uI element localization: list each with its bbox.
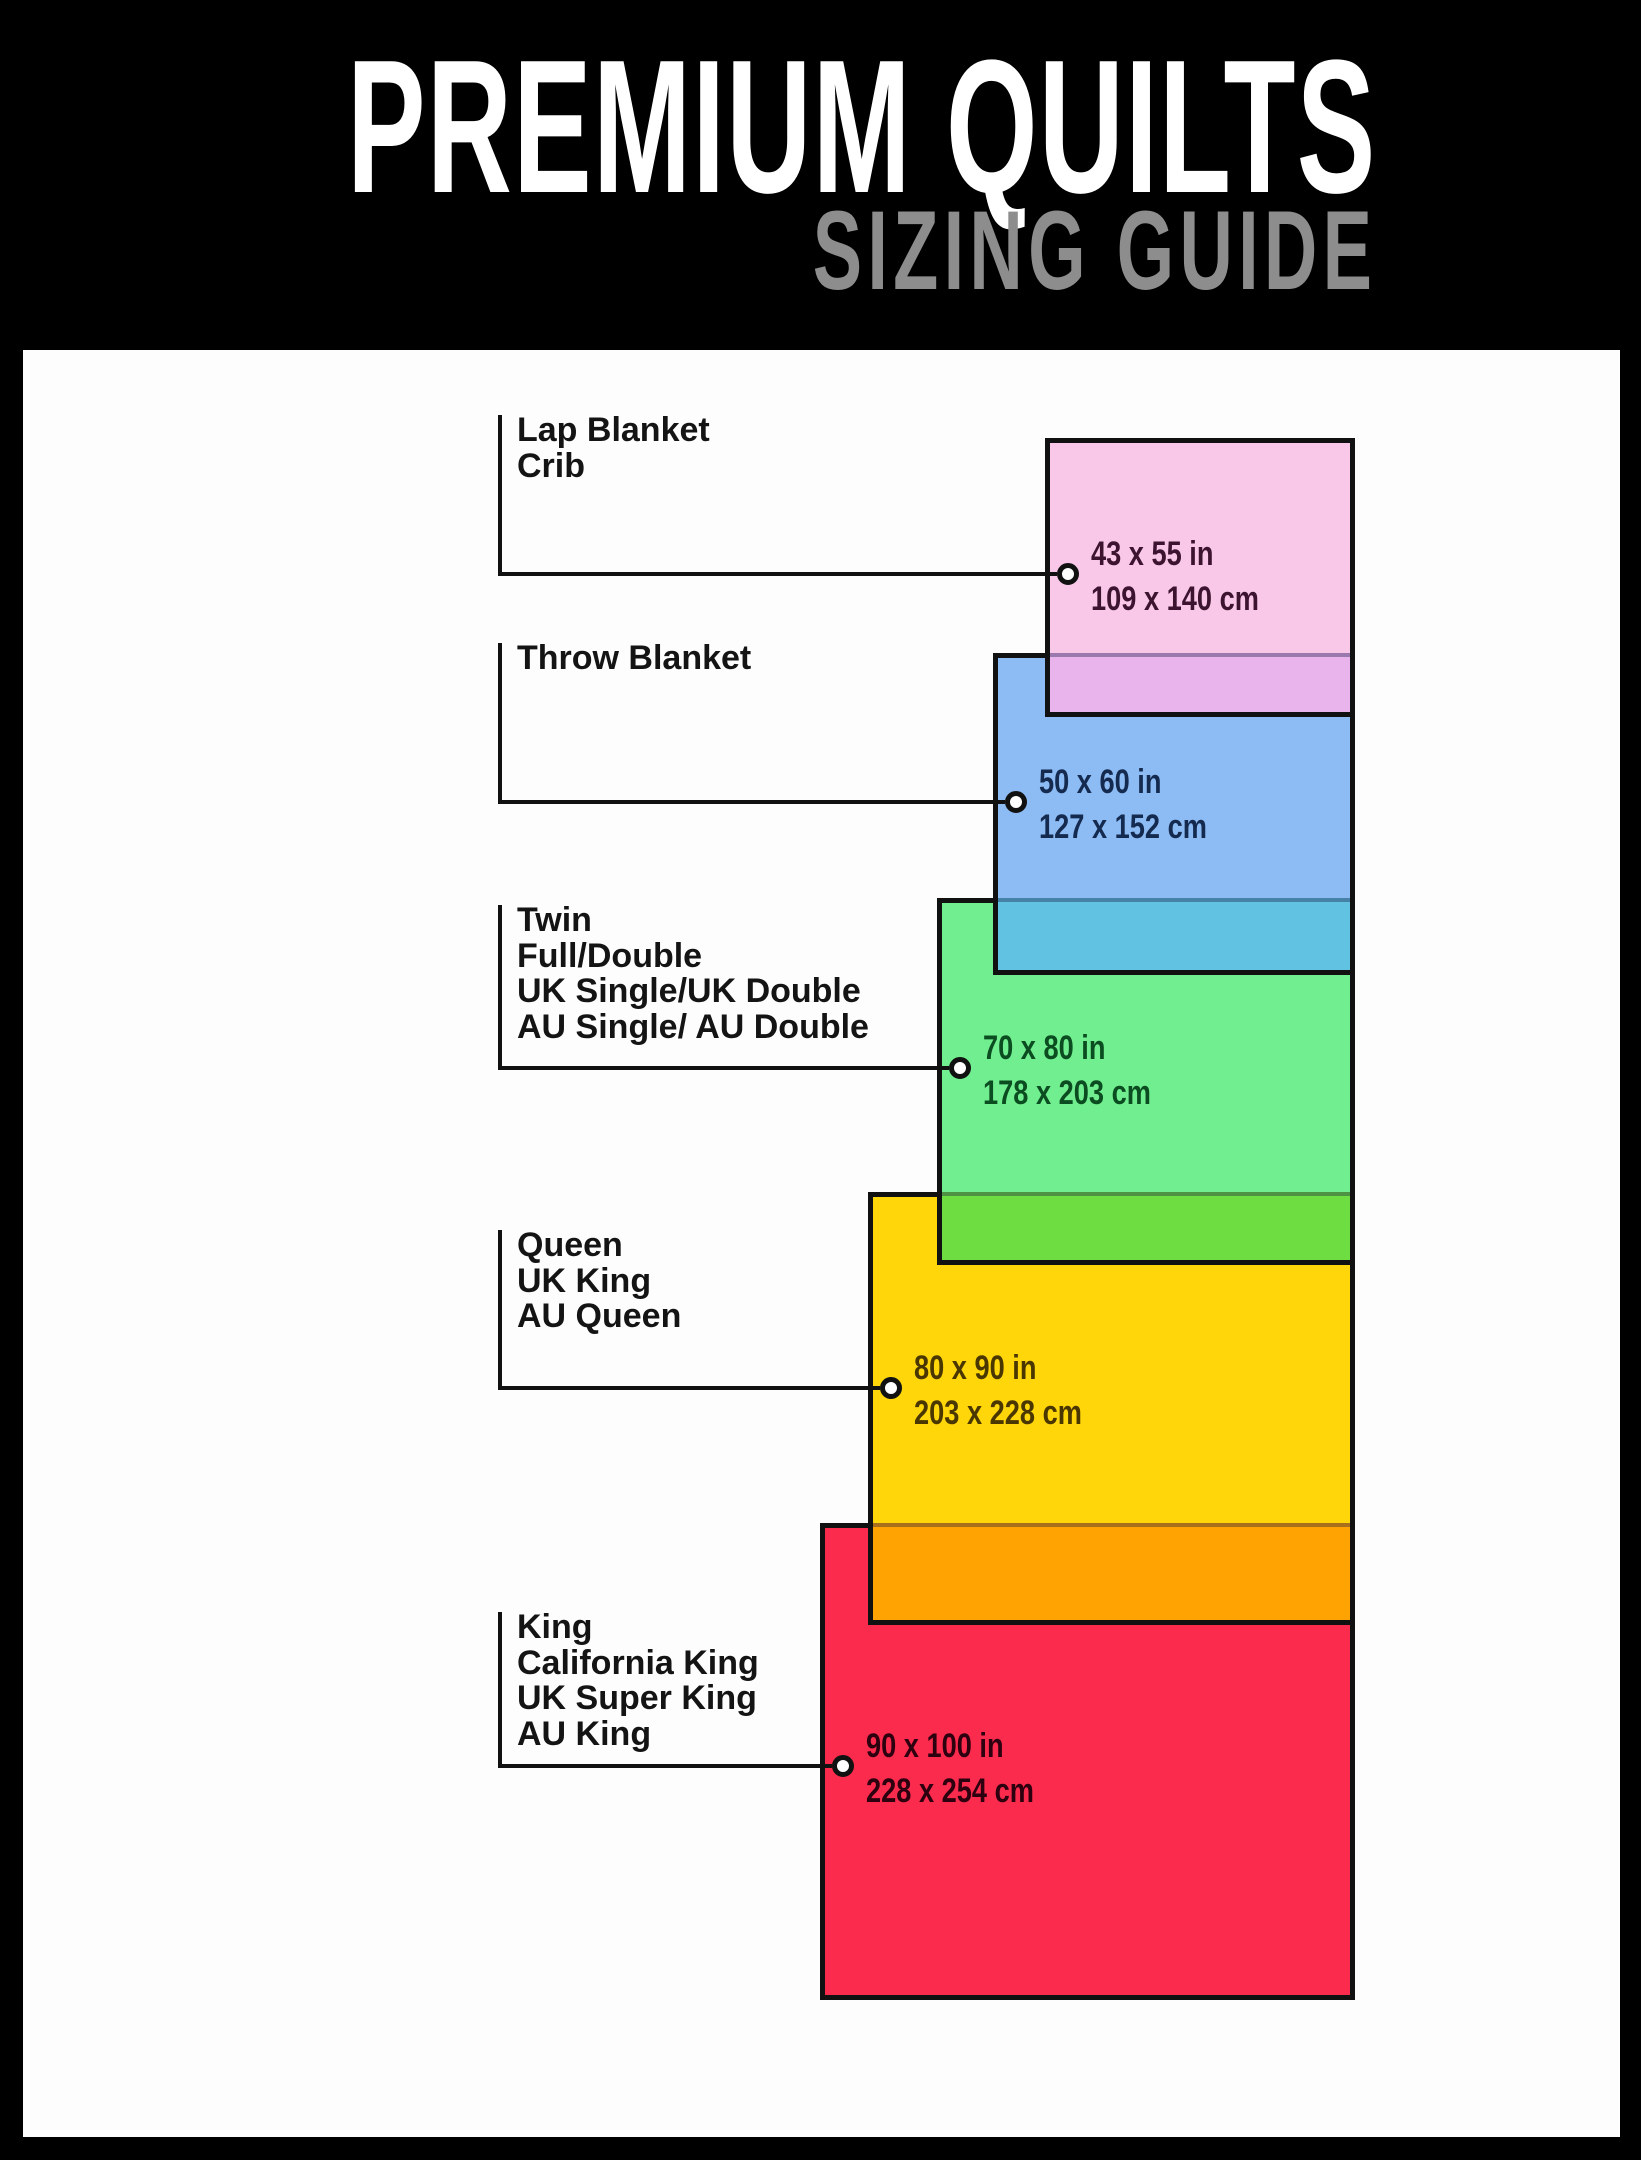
dim-centimeters: 228 x 254 cm: [866, 1769, 1034, 1814]
size-dimensions-text: 50 x 60 in127 x 152 cm: [1039, 760, 1207, 850]
size-label-king-california-king: KingCalifornia KingUK Super KingAU King: [517, 1610, 759, 1752]
leader-vertical-throw-blanket: [498, 643, 502, 804]
size-label-line: Lap Blanket: [517, 413, 710, 449]
dim-centimeters: 109 x 140 cm: [1091, 577, 1259, 622]
dim-centimeters: 127 x 152 cm: [1039, 805, 1207, 850]
size-label-line: UK Super King: [517, 1681, 759, 1717]
size-rect-topline-king-california-king: [820, 1523, 873, 1528]
dim-inches: 80 x 90 in: [914, 1346, 1082, 1391]
size-dimensions-text: 90 x 100 in228 x 254 cm: [866, 1724, 1034, 1814]
size-rect-topline-throw-blanket: [993, 653, 1050, 658]
leader-dot-throw-blanket: [1005, 791, 1027, 813]
size-label-line: Throw Blanket: [517, 641, 751, 677]
leader-vertical-lap-blanket-crib: [498, 415, 502, 576]
size-rect-topline-faint-queen-uk-king-au-queen: [942, 1192, 1350, 1196]
size-rect-topline-queen-uk-king-au-queen: [868, 1192, 942, 1197]
size-label-line: Full/Double: [517, 939, 869, 975]
size-dimensions-text: 80 x 90 in203 x 228 cm: [914, 1346, 1082, 1436]
size-label-line: UK Single/UK Double: [517, 974, 869, 1010]
size-dimensions-text: 43 x 55 in109 x 140 cm: [1091, 532, 1259, 622]
size-label-throw-blanket: Throw Blanket: [517, 641, 751, 677]
leader-dot-twin-full-double: [949, 1057, 971, 1079]
dim-centimeters: 178 x 203 cm: [983, 1071, 1151, 1116]
leader-vertical-twin-full-double: [498, 905, 502, 1070]
leader-dot-queen-uk-king-au-queen: [880, 1377, 902, 1399]
size-dimensions-queen-uk-king-au-queen: 80 x 90 in203 x 228 cm: [914, 1346, 1124, 1436]
leader-horizontal-queen-uk-king-au-queen: [498, 1386, 880, 1390]
size-label-line: Queen: [517, 1228, 681, 1264]
size-rect-topline-faint-twin-full-double: [998, 898, 1350, 902]
size-rect-topline-faint-throw-blanket: [1050, 653, 1350, 657]
dim-centimeters: 203 x 228 cm: [914, 1391, 1082, 1436]
size-dimensions-text: 70 x 80 in178 x 203 cm: [983, 1026, 1151, 1116]
leader-dot-king-california-king: [832, 1755, 854, 1777]
poster: PREMIUM QUILTS SIZING GUIDE Lap BlanketC…: [0, 0, 1641, 2160]
dim-inches: 70 x 80 in: [983, 1026, 1151, 1071]
size-label-lap-blanket-crib: Lap BlanketCrib: [517, 413, 710, 484]
size-label-line: Crib: [517, 449, 710, 485]
size-label-queen-uk-king-au-queen: QueenUK KingAU Queen: [517, 1228, 681, 1335]
size-dimensions-throw-blanket: 50 x 60 in127 x 152 cm: [1039, 760, 1249, 850]
leader-horizontal-lap-blanket-crib: [498, 572, 1057, 576]
leader-vertical-queen-uk-king-au-queen: [498, 1230, 502, 1390]
size-label-line: AU Queen: [517, 1299, 681, 1335]
dim-inches: 50 x 60 in: [1039, 760, 1207, 805]
size-rect-topline-twin-full-double: [937, 898, 998, 903]
leader-dot-lap-blanket-crib: [1057, 563, 1079, 585]
size-dimensions-twin-full-double: 70 x 80 in178 x 203 cm: [983, 1026, 1193, 1116]
dim-inches: 43 x 55 in: [1091, 532, 1259, 577]
size-dimensions-king-california-king: 90 x 100 in228 x 254 cm: [866, 1724, 1076, 1814]
size-label-twin-full-double: TwinFull/DoubleUK Single/UK DoubleAU Sin…: [517, 903, 869, 1045]
poster-subtitle: SIZING GUIDE: [813, 196, 1377, 306]
dim-inches: 90 x 100 in: [866, 1724, 1034, 1769]
size-label-line: UK King: [517, 1264, 681, 1300]
size-label-line: King: [517, 1610, 759, 1646]
leader-horizontal-throw-blanket: [498, 800, 1005, 804]
header: PREMIUM QUILTS SIZING GUIDE: [0, 0, 1641, 350]
size-rect-topline-lap-blanket-crib: [1045, 438, 1355, 443]
size-label-line: AU Single/ AU Double: [517, 1010, 869, 1046]
size-label-line: Twin: [517, 903, 869, 939]
leader-horizontal-twin-full-double: [498, 1066, 949, 1070]
size-rect-topline-faint-king-california-king: [873, 1523, 1350, 1527]
size-label-line: California King: [517, 1646, 759, 1682]
size-label-line: AU King: [517, 1717, 759, 1753]
leader-vertical-king-california-king: [498, 1612, 502, 1768]
leader-horizontal-king-california-king: [498, 1764, 832, 1768]
size-dimensions-lap-blanket-crib: 43 x 55 in109 x 140 cm: [1091, 532, 1301, 622]
